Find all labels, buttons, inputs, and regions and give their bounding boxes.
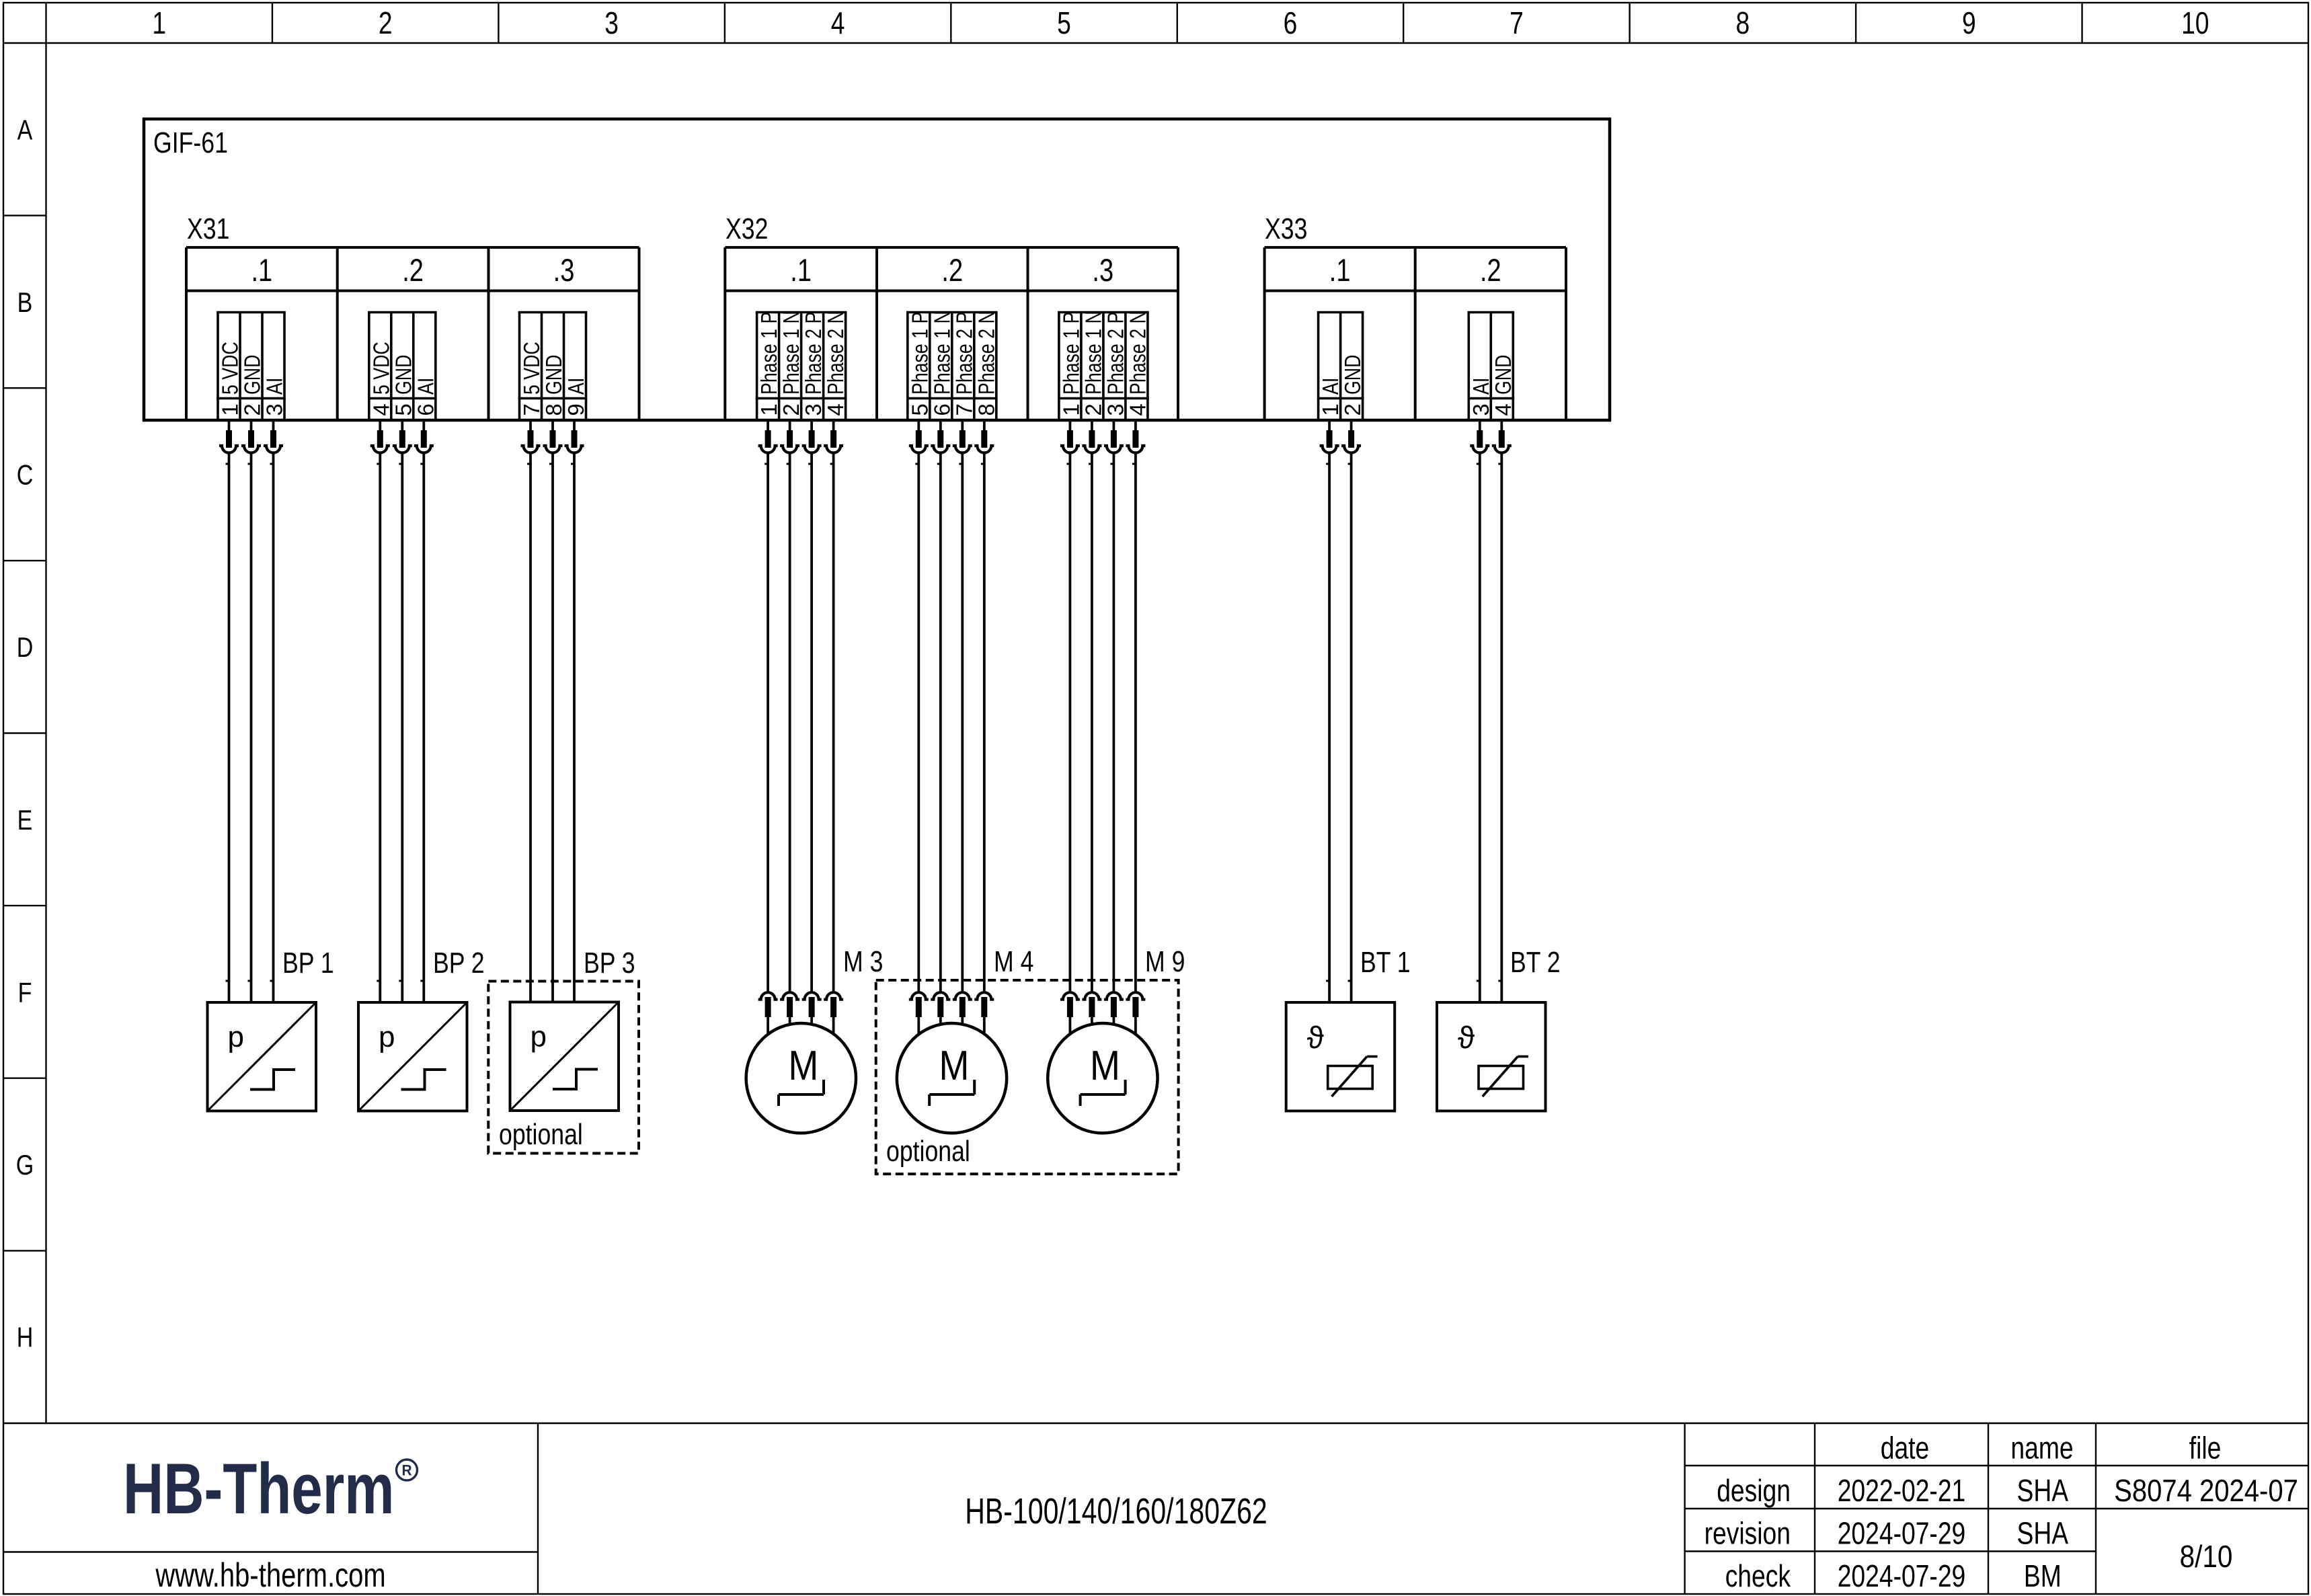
svg-text:revision: revision <box>1705 1516 1791 1551</box>
svg-text:6: 6 <box>1284 5 1298 40</box>
svg-text:.3: .3 <box>553 252 575 288</box>
svg-text:Phase 2 N: Phase 2 N <box>823 311 848 395</box>
svg-text:2: 2 <box>240 403 265 415</box>
svg-text:5: 5 <box>391 403 416 415</box>
svg-text:BP 1: BP 1 <box>282 947 334 980</box>
svg-text:R: R <box>401 1462 412 1479</box>
svg-text:2: 2 <box>379 5 393 40</box>
svg-text:X33: X33 <box>1265 212 1307 245</box>
svg-text:M 9: M 9 <box>1145 945 1185 978</box>
svg-text:C: C <box>17 459 34 491</box>
svg-text:check: check <box>1725 1558 1791 1593</box>
svg-text:BT 1: BT 1 <box>1360 946 1411 979</box>
svg-text:6: 6 <box>929 403 954 415</box>
svg-text:name: name <box>2010 1431 2073 1466</box>
svg-text:M 3: M 3 <box>843 945 883 978</box>
svg-text:2024-07-29: 2024-07-29 <box>1838 1558 1966 1593</box>
svg-text:Phase 1 N: Phase 1 N <box>779 311 804 395</box>
svg-text:S8074 2024-07: S8074 2024-07 <box>2114 1473 2298 1508</box>
svg-text:1: 1 <box>1318 403 1343 415</box>
svg-text:1: 1 <box>1058 403 1083 415</box>
svg-text:3: 3 <box>1468 403 1493 415</box>
svg-text:2: 2 <box>779 403 804 415</box>
svg-text:6: 6 <box>413 403 438 415</box>
svg-text:HB-Therm: HB-Therm <box>123 1448 394 1529</box>
svg-text:.1: .1 <box>790 252 812 288</box>
svg-text:8: 8 <box>974 403 998 415</box>
svg-text:Phase 1 N: Phase 1 N <box>1081 311 1105 395</box>
svg-text:AI: AI <box>1468 378 1493 395</box>
svg-text:Phase 1 P: Phase 1 P <box>756 312 781 395</box>
svg-text:GND: GND <box>240 355 265 395</box>
svg-text:4: 4 <box>368 403 393 415</box>
svg-text:Phase 2 P: Phase 2 P <box>951 312 976 395</box>
svg-text:9: 9 <box>1962 5 1976 40</box>
svg-text:p: p <box>228 1021 244 1053</box>
svg-text:X32: X32 <box>726 212 768 245</box>
svg-text:.2: .2 <box>1480 252 1501 288</box>
svg-text:design: design <box>1717 1473 1791 1508</box>
svg-text:E: E <box>17 804 33 836</box>
svg-text:AI: AI <box>413 378 438 395</box>
svg-text:M: M <box>788 1043 818 1089</box>
svg-text:GND: GND <box>1340 355 1365 395</box>
svg-text:GND: GND <box>391 355 416 395</box>
svg-text:2: 2 <box>1340 403 1365 415</box>
svg-text:BM: BM <box>2024 1558 2062 1593</box>
svg-text:4: 4 <box>1125 403 1150 415</box>
svg-text:M: M <box>939 1043 970 1089</box>
svg-text:2022-02-21: 2022-02-21 <box>1838 1473 1966 1508</box>
svg-text:GND: GND <box>541 355 566 395</box>
svg-text:AI: AI <box>262 378 287 395</box>
svg-text:8/10: 8/10 <box>2180 1539 2233 1574</box>
svg-text:1: 1 <box>756 403 781 415</box>
svg-text:D: D <box>17 631 34 663</box>
svg-text:optional: optional <box>886 1135 970 1168</box>
svg-text:SHA: SHA <box>2017 1473 2069 1508</box>
svg-text:5: 5 <box>907 403 932 415</box>
svg-text:5 VDC: 5 VDC <box>218 342 243 395</box>
svg-text:3: 3 <box>801 403 826 415</box>
svg-text:Phase 2 N: Phase 2 N <box>1125 311 1150 395</box>
svg-text:A: A <box>17 114 33 145</box>
svg-text:.3: .3 <box>1092 252 1113 288</box>
svg-text:Phase 2 N: Phase 2 N <box>974 311 998 395</box>
svg-text:8: 8 <box>1736 5 1750 40</box>
svg-text:5 VDC: 5 VDC <box>519 342 544 395</box>
svg-text:M 4: M 4 <box>994 945 1033 978</box>
svg-text:Phase 1 P: Phase 1 P <box>1058 312 1083 395</box>
svg-text:4: 4 <box>831 5 845 40</box>
svg-text:GND: GND <box>1491 355 1516 395</box>
svg-text:ϑ: ϑ <box>1307 1020 1324 1055</box>
svg-text:1: 1 <box>152 5 166 40</box>
svg-text:F: F <box>18 976 32 1008</box>
svg-text:1: 1 <box>218 403 243 415</box>
svg-text:AI: AI <box>563 378 588 395</box>
svg-text:H: H <box>17 1322 34 1353</box>
svg-text:BP 2: BP 2 <box>433 947 485 980</box>
svg-text:BT 2: BT 2 <box>1510 946 1561 979</box>
svg-text:p: p <box>531 1021 547 1053</box>
svg-text:8: 8 <box>541 403 566 415</box>
svg-text:.1: .1 <box>251 252 273 288</box>
svg-text:.1: .1 <box>1329 252 1351 288</box>
svg-text:Phase 1 N: Phase 1 N <box>929 311 954 395</box>
svg-text:3: 3 <box>1103 403 1128 415</box>
svg-text:5 VDC: 5 VDC <box>368 342 393 395</box>
svg-text:Phase 1 P: Phase 1 P <box>907 312 932 395</box>
svg-text:optional: optional <box>499 1118 583 1151</box>
svg-text:B: B <box>17 286 33 318</box>
svg-text:5: 5 <box>1057 5 1071 40</box>
svg-text:9: 9 <box>563 403 588 415</box>
svg-text:Phase 2 P: Phase 2 P <box>1103 312 1128 395</box>
svg-text:Phase 2 P: Phase 2 P <box>801 312 826 395</box>
svg-text:SHA: SHA <box>2017 1516 2069 1551</box>
svg-text:10: 10 <box>2181 5 2209 40</box>
svg-text:www.hb-therm.com: www.hb-therm.com <box>155 1556 386 1594</box>
svg-text:date: date <box>1881 1431 1930 1466</box>
svg-text:4: 4 <box>823 403 848 415</box>
svg-text:4: 4 <box>1491 403 1516 415</box>
svg-text:p: p <box>379 1021 395 1053</box>
svg-text:.2: .2 <box>402 252 424 288</box>
svg-text:3: 3 <box>262 403 287 415</box>
svg-text:X31: X31 <box>187 212 229 245</box>
svg-text:.2: .2 <box>941 252 963 288</box>
svg-text:7: 7 <box>951 403 976 415</box>
svg-text:GIF-61: GIF-61 <box>153 126 228 159</box>
svg-text:2024-07-29: 2024-07-29 <box>1838 1516 1966 1551</box>
svg-text:ϑ: ϑ <box>1458 1020 1475 1055</box>
svg-text:2: 2 <box>1081 403 1105 415</box>
svg-text:BP 3: BP 3 <box>584 947 635 980</box>
svg-text:M: M <box>1090 1043 1120 1089</box>
svg-text:file: file <box>2189 1431 2222 1466</box>
svg-text:HB-100/140/160/180Z62: HB-100/140/160/180Z62 <box>965 1491 1267 1531</box>
svg-text:7: 7 <box>1510 5 1524 40</box>
svg-text:3: 3 <box>604 5 619 40</box>
svg-text:G: G <box>16 1149 34 1181</box>
svg-text:AI: AI <box>1318 378 1343 395</box>
svg-text:7: 7 <box>519 403 544 415</box>
